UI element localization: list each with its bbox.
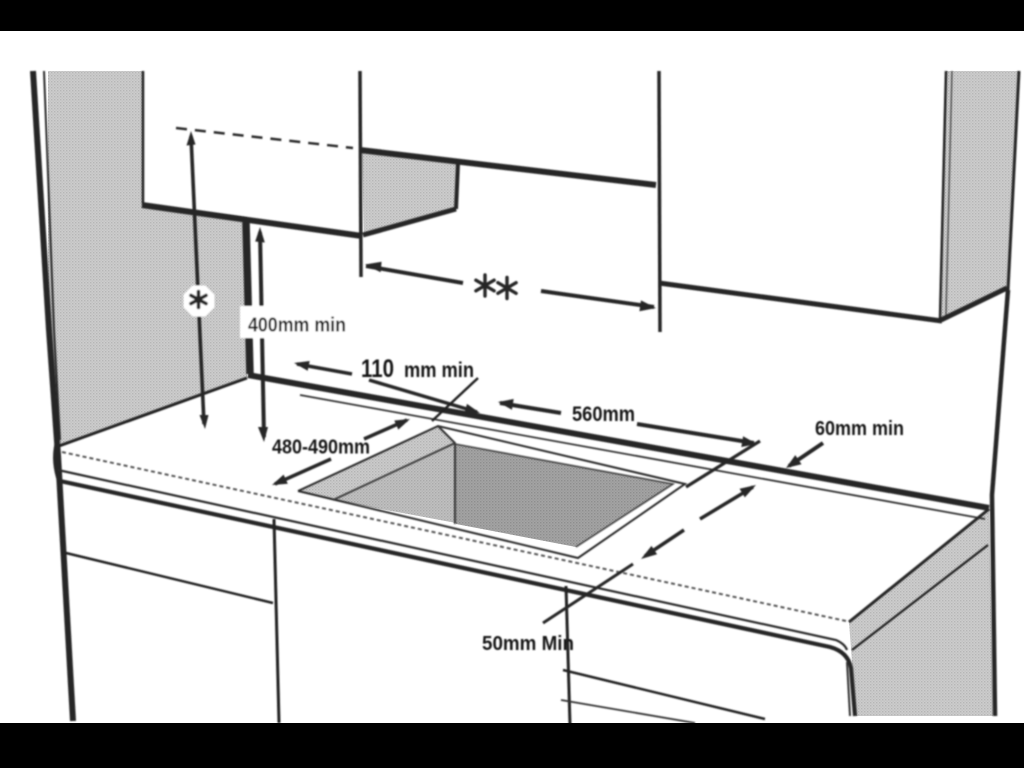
svg-text:400mm min: 400mm min [248, 314, 346, 337]
svg-text:60mm min: 60mm min [815, 417, 904, 440]
svg-text:480-490mm: 480-490mm [272, 436, 370, 459]
svg-text:mm min: mm min [404, 359, 474, 382]
svg-text:560mm: 560mm [572, 403, 635, 426]
svg-text:110: 110 [361, 355, 394, 383]
svg-text:50mm Min: 50mm Min [482, 632, 574, 655]
